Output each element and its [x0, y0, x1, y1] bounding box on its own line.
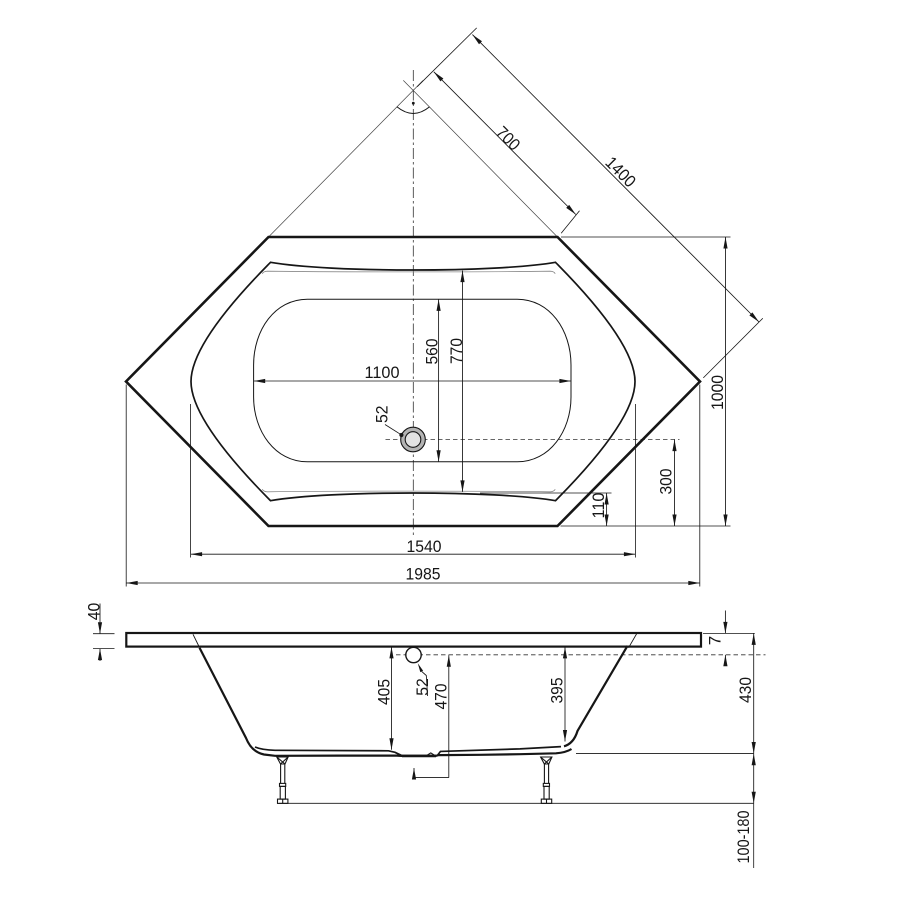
svg-text:1100: 1100: [365, 363, 400, 382]
svg-text:405: 405: [374, 679, 393, 705]
svg-text:300: 300: [657, 469, 676, 495]
svg-text:470: 470: [432, 684, 451, 710]
svg-text:770: 770: [447, 338, 466, 364]
svg-text:40: 40: [85, 603, 104, 621]
svg-text:52: 52: [372, 405, 391, 423]
svg-text:52: 52: [413, 678, 432, 696]
svg-text:7: 7: [706, 636, 725, 645]
svg-text:700: 700: [492, 123, 524, 155]
svg-text:1000: 1000: [708, 375, 727, 410]
svg-text:395: 395: [548, 678, 567, 704]
svg-text:1540: 1540: [407, 537, 442, 556]
svg-text:100-180: 100-180: [734, 811, 753, 864]
svg-text:1985: 1985: [406, 565, 441, 584]
svg-text:110: 110: [589, 493, 608, 519]
svg-text:560: 560: [423, 339, 442, 365]
svg-text:1400: 1400: [601, 153, 639, 191]
svg-text:430: 430: [736, 677, 755, 703]
